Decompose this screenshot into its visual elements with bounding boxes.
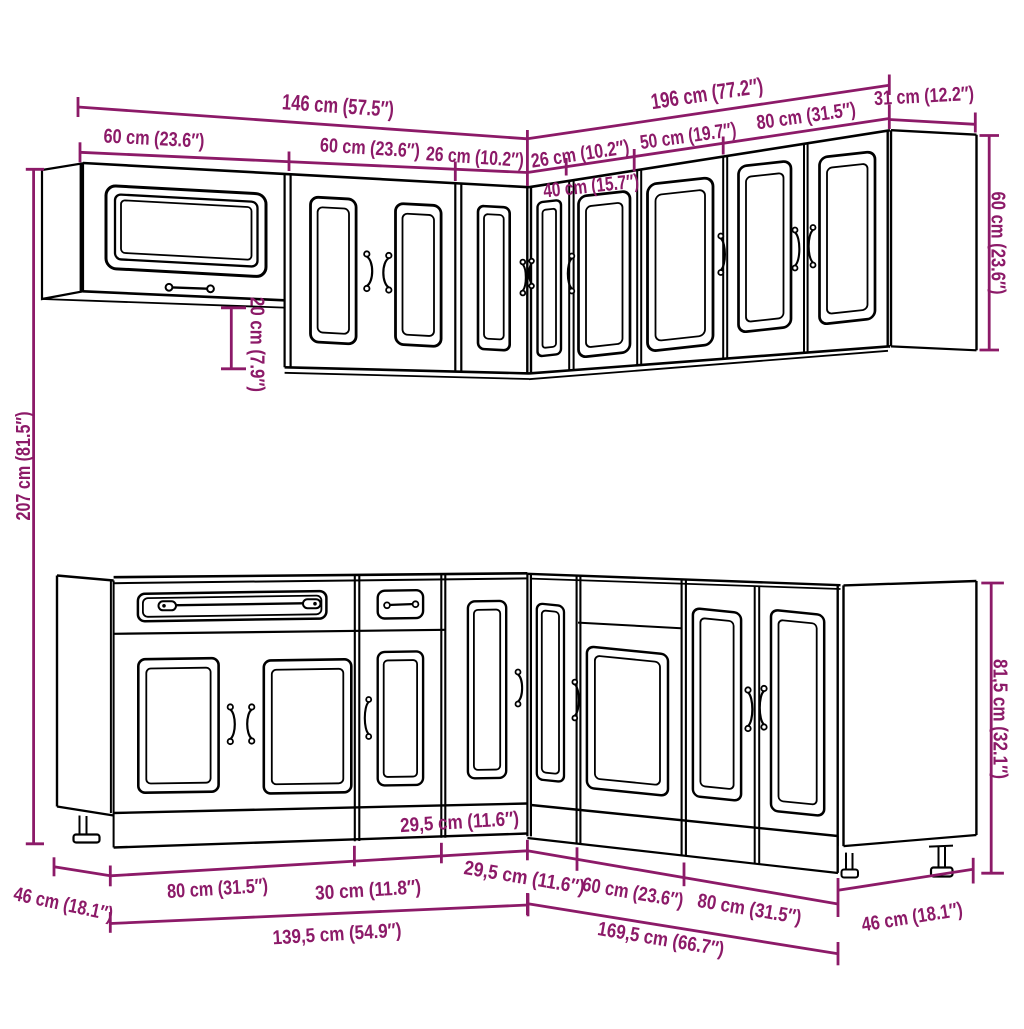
svg-text:26 cm (10.2″): 26 cm (10.2″) — [530, 136, 631, 172]
svg-text:31 cm (12.2″): 31 cm (12.2″) — [874, 83, 975, 110]
svg-text:60 cm (23.6″): 60 cm (23.6″) — [103, 125, 205, 152]
svg-text:46 cm (18.1″): 46 cm (18.1″) — [12, 883, 115, 926]
svg-text:146 cm (57.5″): 146 cm (57.5″) — [281, 89, 394, 122]
svg-text:80 cm (31.5″): 80 cm (31.5″) — [166, 875, 268, 903]
svg-text:60 cm (23.6″): 60 cm (23.6″) — [987, 192, 1009, 295]
svg-text:20 cm (7.9″): 20 cm (7.9″) — [246, 297, 268, 392]
svg-text:29,5 cm (11.6″): 29,5 cm (11.6″) — [462, 857, 586, 899]
svg-text:60 cm (23.6″): 60 cm (23.6″) — [581, 874, 685, 913]
svg-text:29,5 cm (11.6″): 29,5 cm (11.6″) — [400, 808, 520, 837]
svg-text:60 cm (23.6″): 60 cm (23.6″) — [319, 134, 420, 162]
svg-text:139,5 cm (54.9″): 139,5 cm (54.9″) — [272, 920, 402, 950]
svg-text:196 cm (77.2″): 196 cm (77.2″) — [649, 73, 764, 114]
svg-text:30 cm (11.8″): 30 cm (11.8″) — [314, 876, 421, 904]
svg-text:46 cm (18.1″): 46 cm (18.1″) — [860, 899, 964, 937]
svg-text:40 cm (15.7″): 40 cm (15.7″) — [542, 171, 640, 203]
svg-text:207 cm (81.5″): 207 cm (81.5″) — [13, 412, 35, 521]
svg-text:81,5 cm (32.1″): 81,5 cm (32.1″) — [989, 659, 1011, 779]
